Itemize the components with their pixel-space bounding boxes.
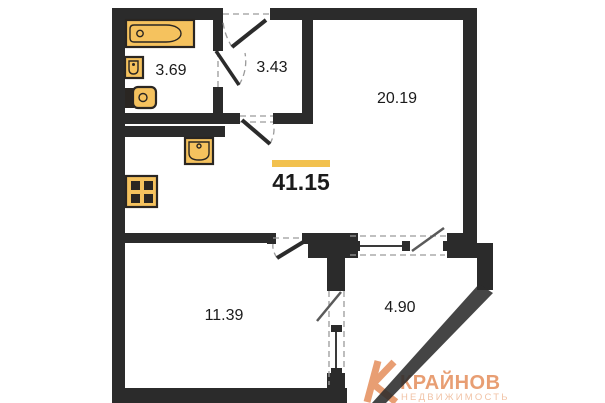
entrance-swing-arc	[223, 21, 232, 47]
floorplan-drawing: КРАЙНОВ НЕДВИЖИМОСТЬ	[0, 0, 605, 403]
top-wall-right	[270, 8, 477, 20]
bath-bottom-wall-right	[273, 113, 313, 124]
living-balcony-door-hinge	[443, 241, 450, 251]
bathroom-swing-arc	[239, 53, 246, 85]
watermark-subtitle: НЕДВИЖИМОСТЬ	[401, 392, 510, 403]
entrance-door-leaf-icon	[232, 20, 266, 47]
living-room-area-label: 20.19	[377, 90, 417, 107]
kitchen-sink-icon	[185, 138, 213, 164]
balcony-outer-wall	[477, 243, 493, 290]
bedroom-swing-arc	[273, 244, 277, 258]
stove-icon	[126, 176, 157, 207]
balcony-right-block	[447, 233, 477, 258]
hall-living-wall	[302, 20, 313, 124]
living-window-end-left	[352, 241, 360, 251]
balcony-pier-block	[308, 233, 358, 258]
bedroom-door-leaf-icon	[277, 241, 305, 258]
bedroom-window-end-top	[331, 325, 342, 332]
balcony-left-column	[327, 258, 345, 291]
kitchen-partition-wall	[112, 126, 225, 137]
hall-door-leaf-icon	[242, 120, 270, 144]
total-area-accent-bar	[272, 160, 330, 167]
bathroom-door-leaf-icon	[216, 51, 239, 85]
bathtub-icon	[126, 20, 194, 47]
bath-bottom-wall-left	[112, 113, 240, 124]
bedroom-top-wall	[112, 233, 273, 243]
bath-hall-divider-top	[213, 20, 223, 51]
bedroom-area-label: 11.39	[205, 307, 244, 324]
left-wall	[112, 8, 125, 403]
top-wall-left	[112, 8, 223, 20]
toilet-icon	[125, 87, 156, 108]
living-balcony-door-leaf-icon	[412, 228, 444, 251]
balcony-area-label: 4.90	[384, 299, 415, 316]
area-labels: 3.69 3.43 20.19 11.39 4.90 41.15	[155, 59, 417, 324]
bathroom-sink-icon	[125, 57, 143, 78]
right-wall	[463, 8, 477, 253]
bathroom-area-label: 3.69	[155, 62, 186, 79]
bedroom-window-end-bottom	[331, 368, 342, 375]
watermark-brand: КРАЙНОВ	[400, 370, 501, 394]
bottom-wall	[112, 388, 347, 403]
hall-swing-arc	[270, 124, 274, 144]
doors-and-windows	[216, 20, 450, 375]
total-area-label: 41.15	[272, 169, 330, 195]
living-window-end-right	[402, 241, 410, 251]
floorplan-canvas: КРАЙНОВ НЕДВИЖИМОСТЬ	[0, 0, 605, 403]
hallway-area-label: 3.43	[256, 59, 287, 76]
